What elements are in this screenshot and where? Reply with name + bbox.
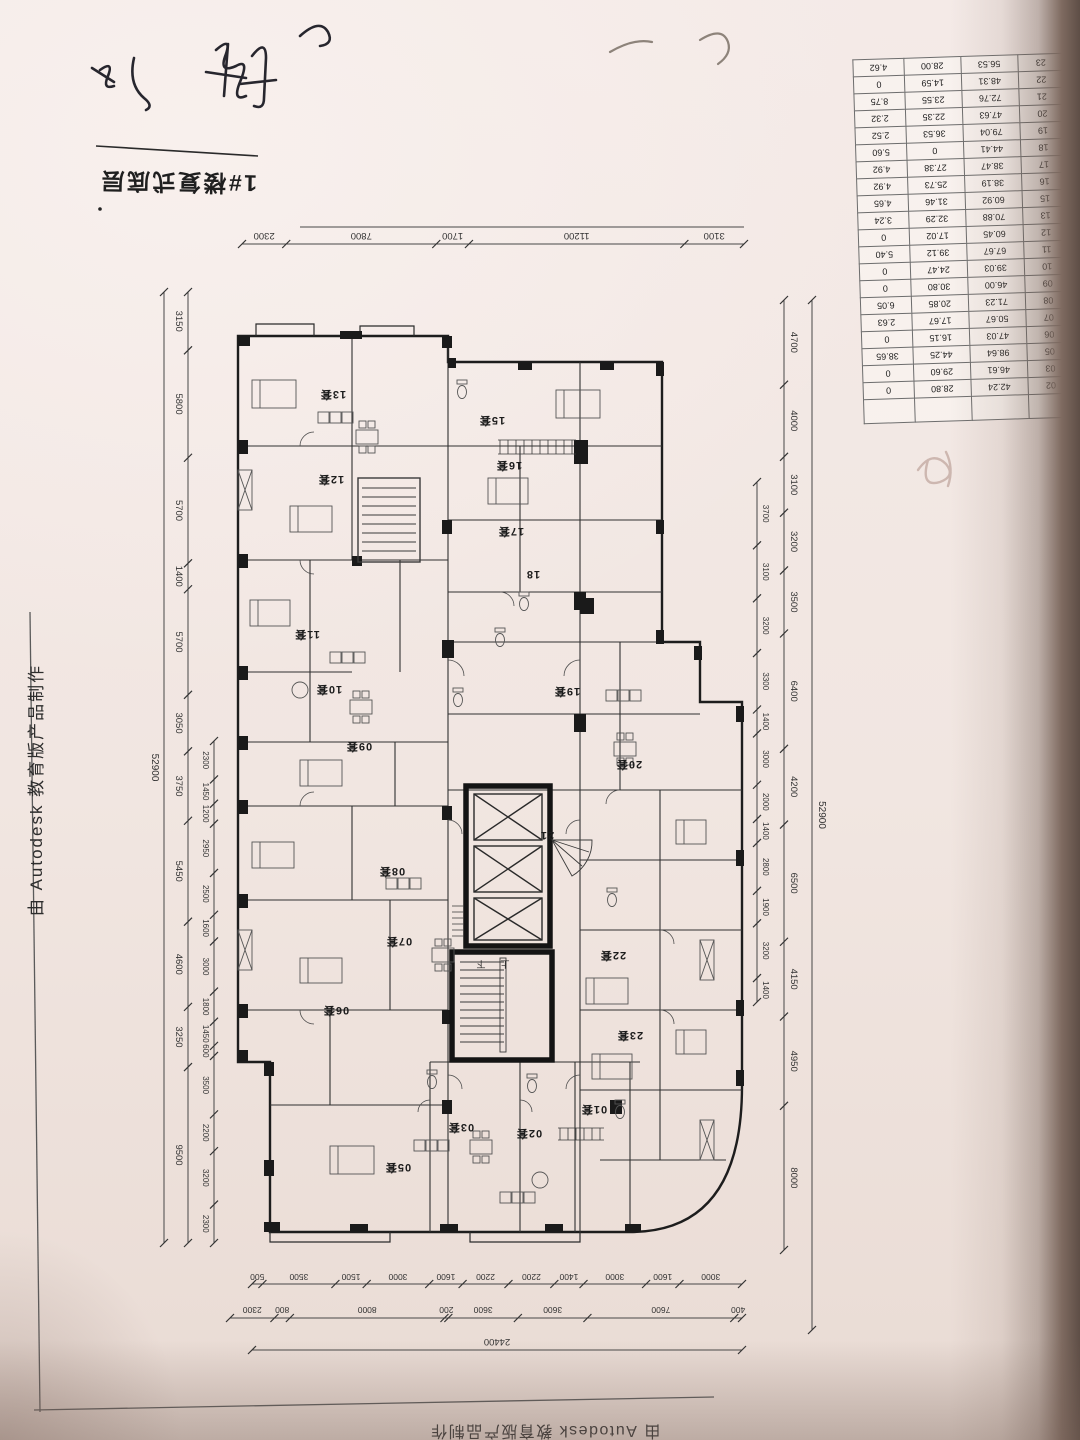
table-cell: 31.46 — [908, 192, 965, 211]
table-cell: 03 — [1027, 359, 1074, 377]
dimension-label: 2500 — [201, 885, 210, 903]
winder-stair — [552, 840, 592, 876]
autodesk-watermark-left: 由 Autodesk 教育版产品制作 — [27, 664, 46, 916]
dimension-label: 3200 — [201, 1169, 210, 1187]
dimension-label: 5700 — [173, 631, 184, 652]
table-cell: 46.00 — [967, 276, 1024, 295]
dimension-label: 3500 — [289, 1272, 308, 1282]
dimension-label: 7600 — [651, 1305, 670, 1315]
dimension-label: 3000 — [701, 1272, 720, 1282]
unit-label: 17套 — [498, 525, 524, 539]
table-cell: 4.65 — [857, 194, 908, 213]
table-cell: 0 — [853, 75, 904, 94]
sheet-frame-lines — [30, 612, 714, 1412]
unit-label: 18 — [526, 568, 540, 580]
table-cell: 2.52 — [855, 126, 906, 145]
dimension-label: 3000 — [761, 750, 770, 768]
dimension-label: 3200 — [761, 617, 770, 635]
table-cell: 39.12 — [909, 243, 966, 262]
dimension-label: 24400 — [484, 1336, 510, 1347]
dimension-label: 6400 — [788, 681, 799, 702]
table-cell: 50.67 — [968, 310, 1025, 329]
unit-label: 15套 — [479, 414, 505, 428]
table-cell: 48.31 — [961, 72, 1018, 91]
dimension-label: 8000 — [357, 1305, 376, 1315]
table-cell: 42.24 — [971, 378, 1028, 397]
table-cell — [914, 396, 972, 422]
dimension-label: 3100 — [704, 230, 725, 241]
dimension-label: 3500 — [788, 591, 799, 612]
table-cell: 10 — [1024, 257, 1071, 275]
dimension-label: 1700 — [442, 230, 463, 241]
dimension-label: 1450 — [201, 1025, 210, 1043]
table-cell: 30.80 — [910, 277, 967, 296]
table-cell: 5.60 — [856, 143, 907, 162]
table-cell: 16.15 — [912, 328, 969, 347]
dimension-label: 1400 — [559, 1272, 578, 1282]
dimension-label: 3600 — [543, 1305, 562, 1315]
table-cell: 71.23 — [968, 293, 1025, 312]
table-cell: 5.40 — [859, 245, 910, 264]
dimension-label: 1400 — [761, 822, 770, 840]
dimension-label: 3600 — [473, 1305, 492, 1315]
dimension-label: 3300 — [761, 672, 770, 690]
table-cell: 21 — [1018, 87, 1065, 105]
drawing-title: 1#楼复式底层 — [99, 168, 258, 197]
table-cell: 44.25 — [913, 345, 970, 364]
stair-direction-label: 下 — [476, 959, 485, 969]
dimension-label: 3050 — [173, 712, 184, 733]
unit-label: 22套 — [600, 949, 626, 963]
table-cell: 29.60 — [913, 362, 970, 381]
dimension-label: 3500 — [201, 1076, 210, 1094]
dimension-label: 4200 — [788, 776, 799, 797]
table-cell: 0 — [906, 141, 963, 160]
unit-labels: 13套12套11套10套09套08套07套06套05套03套02套01套15套1… — [294, 388, 643, 1175]
table-cell: 56.53 — [960, 55, 1017, 74]
unit-label: 11套 — [294, 628, 320, 642]
dimension-label: 200 — [439, 1305, 453, 1315]
dimension-label: 2800 — [761, 858, 770, 876]
dimension-label: 52900 — [816, 801, 827, 829]
stair-upper-left — [358, 478, 420, 562]
unit-label: 10套 — [316, 683, 342, 697]
dimension-label: 1200 — [201, 805, 210, 823]
handwriting-scribble — [92, 26, 330, 110]
dimension-chains: 2300780017001120031003150580057001400570… — [149, 230, 827, 1354]
table-cell: 4.62 — [853, 58, 904, 77]
table-cell: 17.02 — [909, 226, 966, 245]
dimension-label: 3000 — [605, 1272, 624, 1282]
table-cell: 79.04 — [963, 123, 1020, 142]
dimension-label: 3000 — [388, 1272, 407, 1282]
table-cell: 05 — [1026, 342, 1073, 360]
table-cell: 47.03 — [969, 327, 1026, 346]
table-cell: 4.92 — [857, 177, 908, 196]
unit-label: 03套 — [448, 1121, 474, 1135]
table-cell: 2.63 — [861, 313, 912, 332]
table-cell: 36.53 — [906, 124, 963, 143]
dimension-label: 2000 — [761, 793, 770, 811]
table-cell: 2.32 — [854, 109, 905, 128]
table-cell: 23.55 — [905, 91, 962, 110]
table-cell: 47.63 — [962, 106, 1019, 125]
dimension-label: 2200 — [476, 1272, 495, 1282]
unit-label: 23套 — [617, 1029, 643, 1043]
title-underline — [96, 146, 258, 156]
table-cell: 13 — [1022, 206, 1069, 224]
table-cell: 6.05 — [860, 296, 911, 315]
dimension-label: 3200 — [761, 942, 770, 960]
dimension-label: 2300 — [201, 751, 210, 769]
dimension-label: 1600 — [436, 1272, 455, 1282]
table-cell: 46.61 — [970, 361, 1027, 380]
table-cell: 67.67 — [966, 242, 1023, 261]
table-cell: 22 — [1018, 70, 1065, 88]
unit-label: 16套 — [496, 459, 522, 473]
dimension-label: 600 — [201, 1044, 210, 1058]
dimension-label: 2300 — [254, 230, 275, 241]
unit-label: 02套 — [516, 1127, 542, 1141]
dimension-label: 3750 — [173, 775, 184, 796]
table-cell: 09 — [1024, 274, 1071, 292]
table-cell: 20.85 — [911, 294, 968, 313]
dimension-label: 5700 — [173, 500, 184, 521]
dimension-label: 2200 — [522, 1272, 541, 1282]
table-cell: 0 — [862, 364, 913, 383]
table-cell: 44.41 — [963, 140, 1020, 159]
handwriting-scribble-faint — [610, 33, 729, 64]
dimension-label: 2200 — [201, 1124, 210, 1142]
table-cell: 98.64 — [969, 344, 1026, 363]
table-cell: 38.47 — [964, 157, 1021, 176]
table-cell: 08 — [1025, 291, 1072, 309]
area-table: 0242.2428.8000346.6129.6000598.6444.2538… — [852, 53, 1075, 424]
table-cell: 32.29 — [908, 209, 965, 228]
unit-label: 20套 — [616, 758, 642, 772]
table-cell: 8.75 — [854, 92, 905, 111]
dimension-label: 2300 — [201, 1215, 210, 1233]
table-cell: 28.00 — [903, 57, 960, 76]
unit-label: 12套 — [318, 473, 344, 487]
dimension-label: 9500 — [173, 1144, 184, 1165]
dimension-label: 4700 — [788, 332, 799, 353]
unit-label: 05套 — [385, 1161, 411, 1175]
area-table-body: 0242.2428.8000346.6129.6000598.6444.2538… — [853, 53, 1075, 423]
furniture — [238, 380, 714, 1203]
dimension-label: 800 — [275, 1305, 289, 1315]
dimension-label: 3200 — [788, 531, 799, 552]
stair-direction-labels: 下上 — [476, 959, 509, 969]
table-cell: 0 — [861, 330, 912, 349]
table-cell: 07 — [1025, 308, 1072, 326]
dimension-label: 4150 — [788, 969, 799, 990]
dimension-label: 1400 — [173, 566, 184, 587]
table-cell: 06 — [1026, 325, 1073, 343]
dimension-label: 1900 — [761, 898, 770, 916]
wall-piers — [238, 331, 744, 1232]
table-cell: 23 — [1017, 53, 1064, 71]
table-cell: 11 — [1023, 240, 1070, 258]
dimension-label: 4950 — [788, 1051, 799, 1072]
elevator-core — [466, 786, 550, 946]
table-cell — [971, 395, 1029, 421]
dimension-label: 3100 — [788, 474, 799, 495]
dimension-label: 400 — [731, 1305, 745, 1315]
table-cell: 60.45 — [966, 225, 1023, 244]
dimension-label: 7800 — [351, 230, 372, 241]
table-cell: 0 — [860, 279, 911, 298]
table-cell: 3.24 — [858, 211, 909, 230]
table-cell: 28.80 — [914, 379, 971, 398]
table-cell: 24.47 — [910, 260, 967, 279]
dimension-label: 1400 — [761, 713, 770, 731]
table-cell: 20 — [1019, 104, 1066, 122]
stair-direction-label: 上 — [500, 959, 509, 969]
dimension-label: 1500 — [341, 1272, 360, 1282]
pencil-scribble — [918, 452, 951, 486]
unit-label: 08套 — [379, 865, 405, 879]
table-cell: 17.67 — [911, 311, 968, 330]
unit-label: 01套 — [581, 1103, 607, 1117]
dimension-label: 11200 — [564, 230, 590, 241]
table-cell: 4.92 — [856, 160, 907, 179]
dimension-label: 3000 — [201, 958, 210, 976]
floor-plan: 2300780017001120031003150580057001400570… — [149, 227, 827, 1354]
unit-label: 06套 — [323, 1004, 349, 1018]
table-cell — [864, 398, 915, 424]
dimension-label: 8000 — [788, 1167, 799, 1188]
dimension-label: 500 — [250, 1272, 264, 1282]
unit-label: 13套 — [320, 388, 346, 402]
table-cell: 70.88 — [965, 208, 1022, 227]
unit-label: 19套 — [554, 685, 580, 699]
table-cell: 72.76 — [961, 89, 1018, 108]
dimension-label: 1800 — [201, 998, 210, 1016]
dimension-label: 6500 — [788, 873, 799, 894]
table-cell: 39.03 — [967, 259, 1024, 278]
dimension-label: 2950 — [201, 839, 210, 857]
table-cell: 60.92 — [965, 191, 1022, 210]
dimension-label: 3100 — [761, 563, 770, 581]
dimension-label: 3150 — [173, 311, 184, 332]
dimension-label: 1600 — [201, 919, 210, 937]
balcony-edges — [256, 324, 580, 1242]
table-cell: 16 — [1021, 172, 1068, 190]
autodesk-watermark-bottom: 由 Autodesk 教育版产品制作 — [430, 1422, 661, 1440]
table-cell: 25.73 — [907, 175, 964, 194]
drawing-title-block: 1#楼复式底层 — [96, 146, 258, 211]
dimension-label: 1400 — [761, 981, 770, 999]
unit-label: 09套 — [346, 740, 372, 754]
table-cell: 02 — [1027, 376, 1074, 394]
dimension-label: 3700 — [761, 505, 770, 523]
table-cell: 18 — [1020, 138, 1067, 156]
dimension-label: 5800 — [173, 393, 184, 414]
table-cell: 17 — [1021, 155, 1068, 173]
table-cell: 0 — [863, 381, 914, 400]
table-cell — [1028, 393, 1075, 418]
table-cell: 12 — [1023, 223, 1070, 241]
table-cell: 27.38 — [907, 158, 964, 177]
table-cell: 22.35 — [905, 107, 962, 126]
table-cell: 38.19 — [964, 174, 1021, 193]
dimension-label: 4000 — [788, 410, 799, 431]
table-cell: 19 — [1019, 121, 1066, 139]
dimension-label: 2300 — [242, 1305, 261, 1315]
table-cell: 0 — [859, 262, 910, 281]
dimension-label: 1600 — [653, 1272, 672, 1282]
dimension-label: 1450 — [201, 783, 210, 801]
dimension-label: 3250 — [173, 1026, 184, 1047]
unit-label: 21 — [540, 829, 554, 841]
dimension-label: 4600 — [173, 954, 184, 975]
table-cell: 15 — [1022, 189, 1069, 207]
table-cell: 38.65 — [862, 347, 913, 366]
unit-label: 07套 — [386, 935, 412, 949]
dimension-label: 52900 — [149, 754, 160, 782]
table-cell: 14.59 — [904, 74, 961, 93]
table-cell: 0 — [858, 228, 909, 247]
dimension-label: 5450 — [173, 861, 184, 882]
